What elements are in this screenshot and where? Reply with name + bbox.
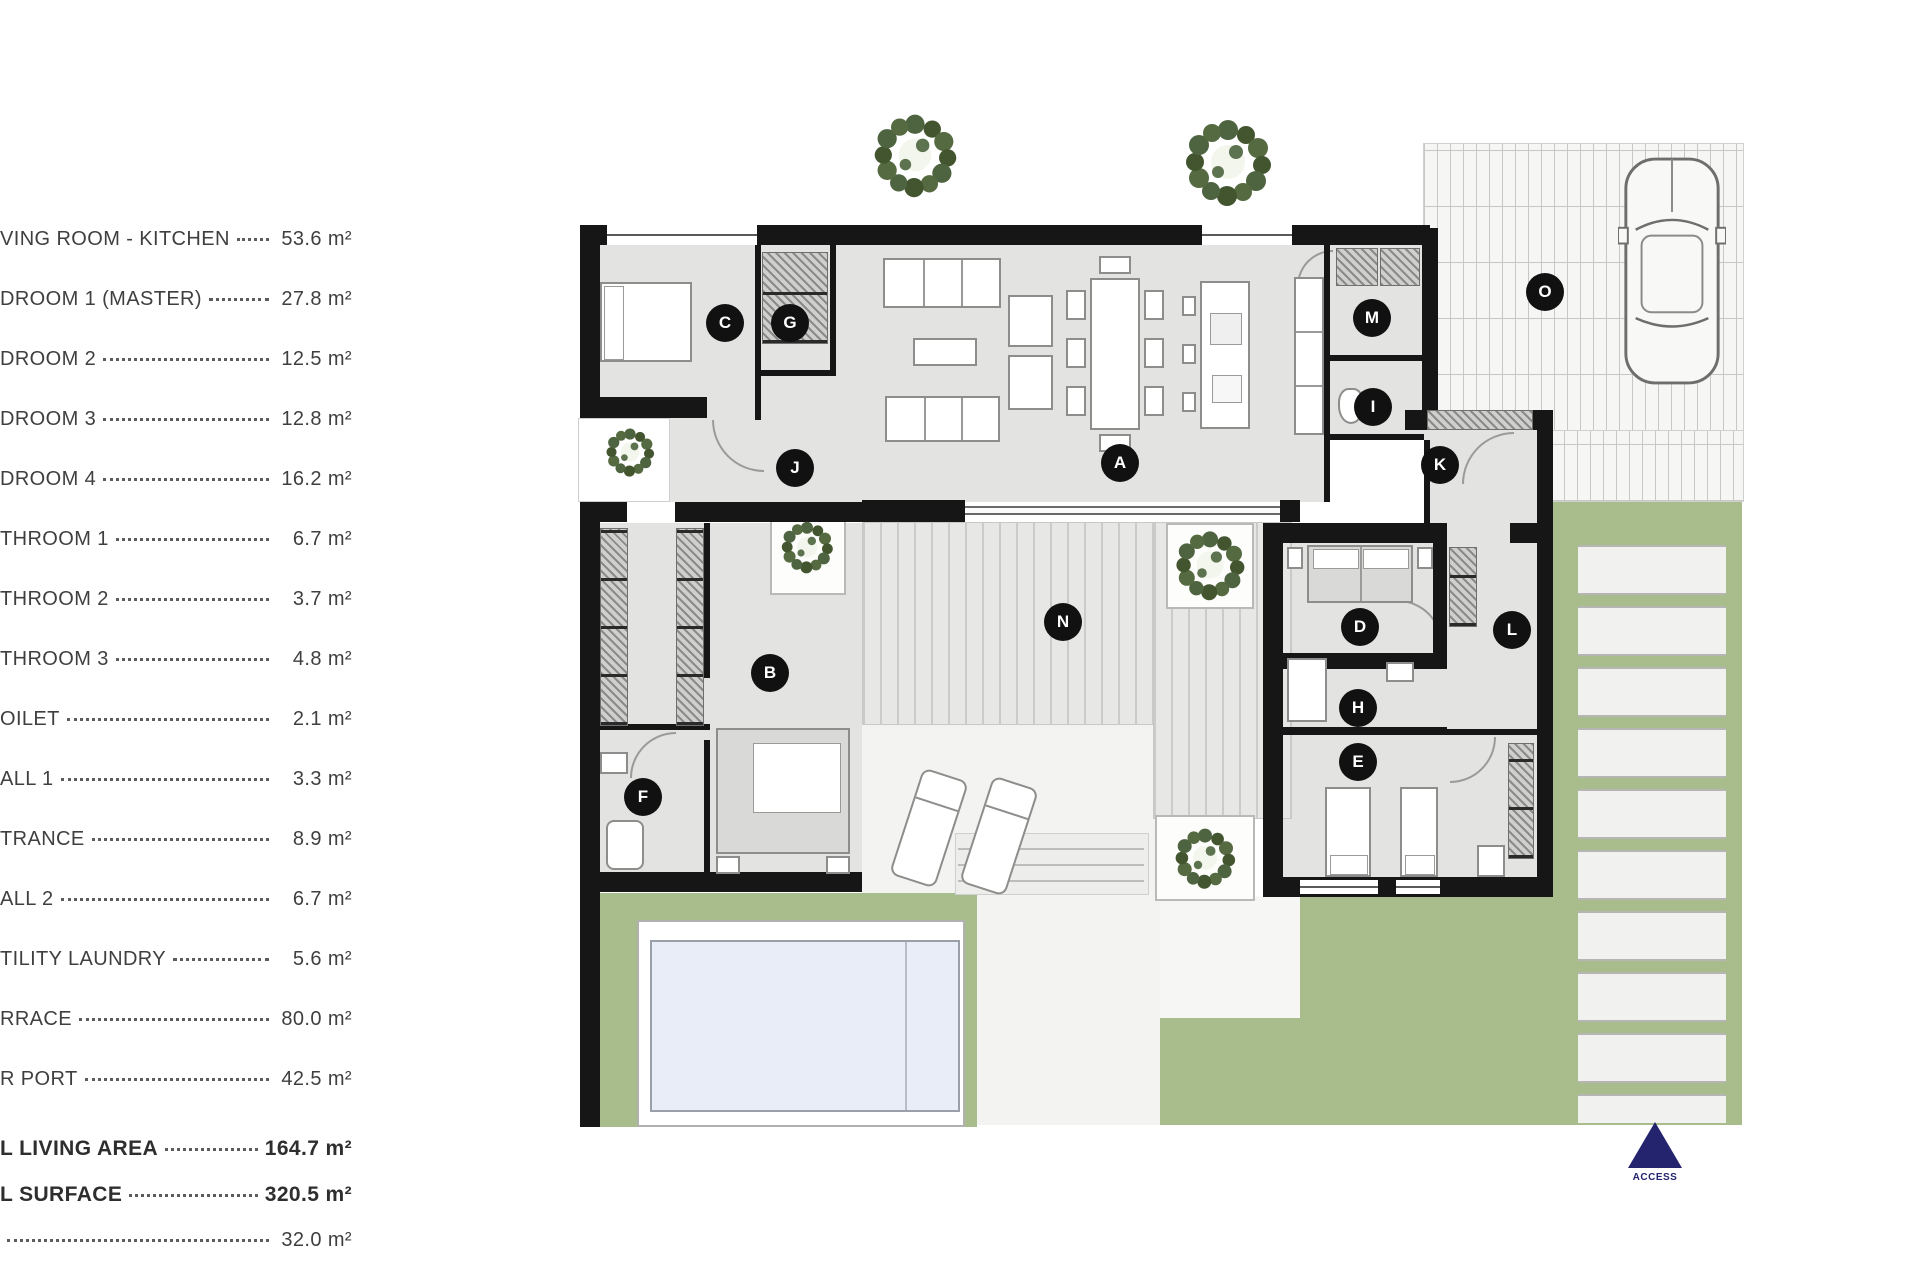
- side-table: [1477, 845, 1505, 877]
- wardrobe: [1449, 547, 1477, 627]
- bed: [1325, 787, 1371, 877]
- room-marker-o: O: [1526, 273, 1564, 311]
- patio: [977, 893, 1160, 1125]
- sofa: [885, 396, 1000, 442]
- wall: [1292, 225, 1430, 245]
- dining-chair: [1144, 338, 1164, 368]
- bed: [1400, 787, 1438, 877]
- nightstand: [1417, 547, 1433, 569]
- wall: [1283, 727, 1447, 735]
- window: [1202, 228, 1292, 242]
- wall: [755, 245, 761, 420]
- pool-lane-line: [905, 942, 907, 1110]
- garden-boundary-wall: [580, 892, 600, 1127]
- wall: [862, 500, 965, 522]
- tree-icon: [867, 107, 963, 203]
- hob: [1210, 313, 1242, 345]
- glass-sliding-door: [965, 506, 1280, 515]
- nightstand: [1287, 547, 1303, 569]
- room-marker-f: F: [624, 778, 662, 816]
- wall: [755, 370, 836, 376]
- dining-chair: [1066, 290, 1086, 320]
- access-label: ACCESS: [1610, 1172, 1700, 1183]
- room-marker-l: L: [1493, 611, 1531, 649]
- wall: [1324, 245, 1330, 502]
- counter-line: [1296, 331, 1322, 333]
- pillow: [1330, 855, 1368, 875]
- armchair: [1008, 355, 1053, 410]
- bed-line: [1360, 547, 1362, 601]
- wall: [1280, 500, 1300, 522]
- tree-icon: [1178, 112, 1278, 212]
- wall: [580, 225, 607, 245]
- wall: [1537, 430, 1553, 897]
- sofa-line: [924, 398, 926, 440]
- dining-chair: [1099, 256, 1131, 274]
- wardrobe: [1508, 743, 1534, 859]
- duvet: [753, 743, 841, 813]
- wall: [1510, 523, 1553, 543]
- wall: [704, 740, 710, 872]
- pillow: [1363, 549, 1409, 569]
- dining-chair: [1066, 386, 1086, 416]
- wall: [757, 225, 1202, 245]
- wall: [1422, 228, 1438, 430]
- armchair: [1008, 295, 1053, 347]
- room-marker-j: J: [776, 449, 814, 487]
- room-marker-k: K: [1421, 446, 1459, 484]
- tree-icon: [1170, 823, 1240, 893]
- wall: [580, 872, 862, 892]
- wardrobe: [676, 528, 704, 726]
- pillow: [1313, 549, 1359, 569]
- sofa-line: [923, 260, 925, 306]
- terrace-deck: [862, 522, 1155, 725]
- wall: [1263, 543, 1283, 897]
- wall: [1433, 543, 1447, 653]
- window: [607, 228, 757, 242]
- bed: [1307, 545, 1413, 603]
- access-arrow-icon: [1628, 1122, 1682, 1168]
- room-marker-c: C: [706, 304, 744, 342]
- kitchen-counter: [1294, 277, 1324, 435]
- walkway: [1160, 897, 1300, 1018]
- wall: [1447, 729, 1553, 735]
- washer-dryer: [1336, 248, 1378, 286]
- wall: [1330, 355, 1424, 361]
- shower: [1287, 658, 1327, 722]
- wall: [1263, 523, 1447, 543]
- sofa-line: [961, 260, 963, 306]
- room-marker-g: G: [771, 304, 809, 342]
- carport-paving: [1537, 430, 1744, 502]
- nightstand: [826, 856, 850, 874]
- room-marker-e: E: [1339, 743, 1377, 781]
- wall: [580, 397, 707, 418]
- room-marker-a: A: [1101, 444, 1139, 482]
- wall: [580, 245, 600, 397]
- pool: [650, 940, 960, 1112]
- bar-stool: [1182, 296, 1196, 316]
- room-marker-b: B: [751, 654, 789, 692]
- sink: [1212, 375, 1242, 403]
- washer-dryer: [1380, 248, 1420, 286]
- dining-table: [1090, 278, 1140, 430]
- nightstand: [716, 856, 740, 874]
- bed: [600, 282, 692, 362]
- wall: [1405, 410, 1427, 430]
- dining-chair: [1144, 386, 1164, 416]
- sofa: [883, 258, 1001, 308]
- sofa-line: [961, 398, 963, 440]
- wall: [1330, 434, 1424, 440]
- entry-grille: [1427, 410, 1533, 430]
- site-plan: A B C D E F G H I J K L M N O ACCESS: [0, 0, 1920, 1280]
- tree-icon: [777, 517, 837, 577]
- kitchen-island: [1200, 281, 1250, 429]
- room-marker-n: N: [1044, 603, 1082, 641]
- wall: [600, 502, 627, 522]
- room-marker-i: I: [1354, 388, 1392, 426]
- bar-stool: [1182, 392, 1196, 412]
- window: [1396, 880, 1440, 894]
- wardrobe: [600, 528, 628, 726]
- wall: [704, 523, 710, 678]
- wall: [580, 502, 600, 872]
- wall: [1533, 410, 1553, 430]
- window: [1300, 880, 1378, 894]
- car-icon: [1618, 152, 1726, 390]
- pillow: [604, 286, 624, 360]
- dining-chair: [1066, 338, 1086, 368]
- garden-steps: [1578, 545, 1726, 1123]
- coffee-table: [913, 338, 977, 366]
- sink: [1386, 662, 1414, 682]
- floor-plan-page: VING ROOM - KITCHEN53.6 m² DROOM 1 (MAST…: [0, 0, 1920, 1280]
- bed-master: [716, 728, 850, 854]
- tree-icon: [1170, 525, 1250, 605]
- shower: [606, 820, 644, 870]
- dining-chair: [1144, 290, 1164, 320]
- bar-stool: [1182, 344, 1196, 364]
- room-marker-d: D: [1341, 608, 1379, 646]
- tree-icon: [602, 424, 658, 480]
- room-marker-h: H: [1339, 689, 1377, 727]
- room-marker-m: M: [1353, 299, 1391, 337]
- counter-line: [1296, 385, 1322, 387]
- wall: [830, 245, 836, 375]
- pillow: [1405, 855, 1435, 875]
- sink: [600, 752, 628, 774]
